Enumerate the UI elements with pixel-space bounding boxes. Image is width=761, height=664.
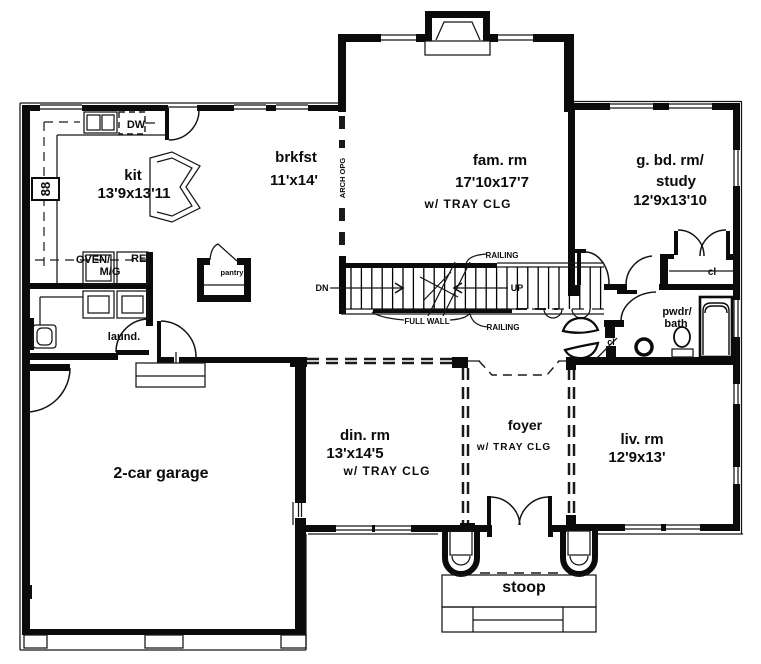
svg-text:88: 88: [38, 182, 53, 196]
svg-text:cl: cl: [708, 267, 717, 278]
svg-text:RAILING: RAILING: [487, 323, 520, 332]
svg-text:w/ TRAY CLG: w/ TRAY CLG: [476, 442, 551, 453]
svg-text:w/ TRAY CLG: w/ TRAY CLG: [342, 464, 430, 478]
svg-text:17'10x17'7: 17'10x17'7: [455, 174, 529, 191]
svg-text:cl: cl: [607, 337, 615, 347]
svg-text:M/G: M/G: [100, 266, 121, 278]
svg-text:laund.: laund.: [108, 331, 140, 343]
svg-text:12'9x13'10: 12'9x13'10: [633, 192, 707, 209]
svg-text:brkfst: brkfst: [275, 149, 317, 166]
svg-text:13'9x13'11: 13'9x13'11: [97, 185, 170, 202]
svg-text:12'9x13': 12'9x13': [608, 449, 665, 466]
svg-text:g. bd. rm/: g. bd. rm/: [636, 152, 704, 169]
svg-text:study: study: [656, 173, 697, 190]
svg-text:13'x14'5: 13'x14'5: [326, 445, 383, 462]
svg-text:foyer: foyer: [508, 417, 543, 433]
svg-text:liv. rm: liv. rm: [620, 431, 663, 448]
svg-text:din. rm: din. rm: [340, 427, 390, 444]
svg-text:stoop: stoop: [502, 579, 546, 596]
svg-text:pwdr/: pwdr/: [662, 306, 691, 318]
svg-text:bath: bath: [664, 318, 688, 330]
svg-text:kit: kit: [124, 167, 142, 184]
svg-text:11'x14': 11'x14': [270, 172, 318, 189]
svg-text:DW: DW: [127, 119, 146, 131]
svg-text:w/ TRAY CLG: w/ TRAY CLG: [423, 197, 511, 211]
svg-text:FULL WALL: FULL WALL: [404, 317, 449, 326]
svg-text:fam. rm: fam. rm: [473, 152, 527, 169]
svg-text:ARCH OPG: ARCH OPG: [338, 158, 347, 199]
svg-text:RAILING: RAILING: [486, 251, 519, 260]
svg-text:pantry: pantry: [221, 268, 245, 277]
svg-text:DN: DN: [316, 283, 329, 293]
svg-text:OVEN/: OVEN/: [76, 254, 110, 266]
svg-text:2-car garage: 2-car garage: [113, 465, 208, 482]
svg-text:REF: REF: [131, 253, 153, 265]
svg-text:UP: UP: [511, 283, 524, 293]
